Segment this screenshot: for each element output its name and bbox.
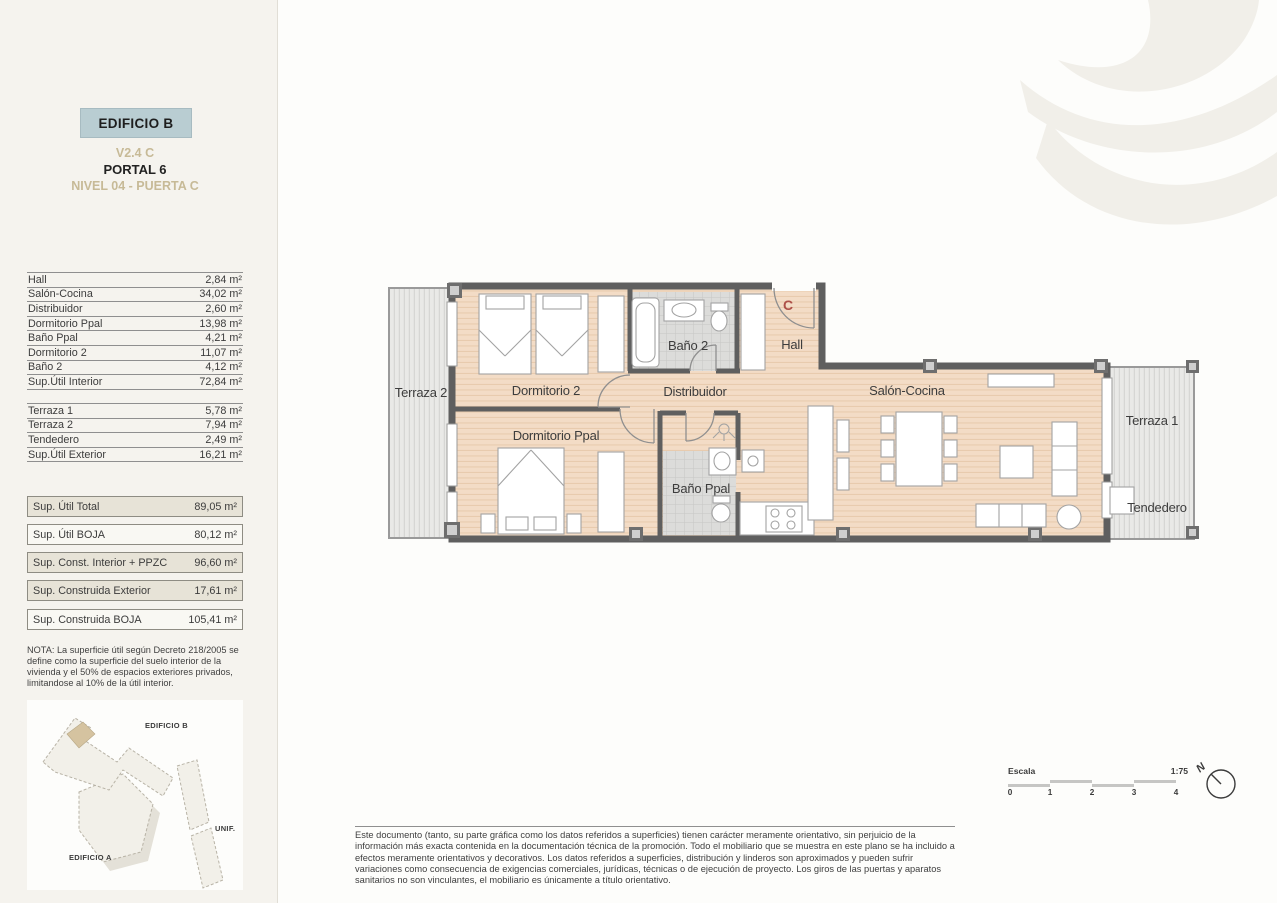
row-value: 5,78 m²: [205, 405, 242, 417]
interior-areas-table: Hall2,84 m² Salón-Cocina34,02 m² Distrib…: [27, 272, 243, 390]
row-label: Terraza 2: [28, 419, 73, 431]
siteplan-label-edificio-b: EDIFICIO B: [145, 721, 188, 730]
scale-tick: 0: [1008, 788, 1013, 797]
table-row: Distribuidor2,60 m²: [27, 302, 243, 317]
row-value: 7,94 m²: [205, 419, 242, 431]
row-value: 2,49 m²: [205, 434, 242, 446]
room-label-hall: Hall: [781, 337, 803, 352]
plan-sheet: Terraza 2 Dormitorio 2 Dormitorio Ppal B…: [278, 0, 1277, 903]
table-row: Baño Ppal4,21 m²: [27, 331, 243, 346]
entry-opening: [772, 281, 816, 291]
building-title-box: EDIFICIO B: [80, 108, 192, 138]
summary-box-const-interior: Sup. Const. Interior + PPZC96,60 m²: [27, 552, 243, 573]
table-row: Sup.Útil Exterior16,21 m²: [27, 448, 243, 463]
info-sidebar: EDIFICIO B V2.4 C PORTAL 6 NIVEL 04 - PU…: [0, 0, 278, 903]
scale-ratio: 1:75: [1171, 766, 1188, 776]
row-value: 11,07 m²: [200, 347, 242, 359]
exterior-areas-table: Terraza 15,78 m² Terraza 27,94 m² Tended…: [27, 403, 243, 462]
table-row: Dormitorio Ppal13,98 m²: [27, 317, 243, 332]
stove: [766, 506, 802, 532]
row-value: 34,02 m²: [199, 288, 242, 300]
bathroom-sink: [664, 300, 704, 321]
row-label: Sup.Útil Exterior: [28, 449, 106, 461]
row-label: Hall: [28, 274, 47, 286]
room-label-terraza1: Terraza 1: [1126, 413, 1178, 428]
edificio-a-outline: [79, 774, 153, 862]
row-label: Distribuidor: [28, 303, 83, 315]
row-label: Tendedero: [28, 434, 79, 446]
room-label-bano-ppal: Baño Ppal: [672, 481, 731, 496]
nota-text: NOTA: La superficie útil según Decreto 2…: [27, 645, 243, 689]
single-bed: [479, 294, 531, 374]
row-value: 4,21 m²: [205, 332, 242, 344]
scale-ruler: [1008, 779, 1188, 788]
bathtub: [632, 298, 659, 367]
row-value: 72,84 m²: [199, 376, 242, 388]
summary-value: 17,61 m²: [194, 585, 237, 597]
nightstand: [481, 514, 495, 533]
floor-plan: Terraza 2 Dormitorio 2 Dormitorio Ppal B…: [385, 278, 1225, 549]
room-label-dormitorio-ppal: Dormitorio Ppal: [513, 428, 600, 443]
summary-label: Sup. Útil BOJA: [33, 529, 105, 541]
kitchen-cabinet: [837, 458, 849, 490]
room-label-terraza2: Terraza 2: [395, 385, 447, 400]
summary-value: 105,41 m²: [188, 614, 237, 626]
entry-letter: C: [783, 297, 793, 313]
summary-label: Sup. Const. Interior + PPZC: [33, 557, 167, 569]
pouf: [1057, 505, 1081, 529]
scale-tick: 2: [1090, 788, 1095, 797]
row-value: 2,84 m²: [205, 274, 242, 286]
room-label-distribuidor: Distribuidor: [663, 384, 727, 399]
table-row: Salón-Cocina34,02 m²: [27, 288, 243, 303]
scale-bar: Escala 1:75 0 1 2 3 4: [1008, 766, 1188, 798]
room-label-tendedero: Tendedero: [1127, 500, 1187, 515]
row-value: 4,12 m²: [205, 361, 242, 373]
siteplan-label-unif: UNIF.: [215, 824, 235, 833]
row-label: Sup.Útil Interior: [28, 376, 102, 388]
room-label-dormitorio2: Dormitorio 2: [512, 383, 580, 398]
sideboard: [988, 374, 1054, 387]
north-letter: N: [1194, 760, 1209, 775]
summary-box-util-boja: Sup. Útil BOJA80,12 m²: [27, 524, 243, 545]
row-label: Baño Ppal: [28, 332, 78, 344]
scale-tick: 1: [1048, 788, 1053, 797]
room-label-bano2: Baño 2: [668, 338, 708, 353]
room-label-salon-cocina: Salón-Cocina: [869, 383, 946, 398]
summary-value: 80,12 m²: [194, 529, 237, 541]
table-row: Tendedero2,49 m²: [27, 433, 243, 448]
hall-closet: [741, 294, 765, 370]
level-label: NIVEL 04 - PUERTA C: [27, 179, 243, 193]
table-row: Dormitorio 211,07 m²: [27, 346, 243, 361]
brand-swoosh-logo: [1020, 0, 1277, 245]
nightstand: [567, 514, 581, 533]
scale-label: Escala: [1008, 766, 1035, 776]
coffee-table: [1000, 446, 1033, 478]
table-row: Terraza 15,78 m²: [27, 404, 243, 419]
row-value: 2,60 m²: [205, 303, 242, 315]
north-arrow: N: [1193, 758, 1243, 804]
summary-box-construida-ext: Sup. Construida Exterior17,61 m²: [27, 580, 243, 601]
disclaimer-text: Este documento (tanto, su parte gráfica …: [355, 826, 955, 887]
toilet: [712, 496, 730, 522]
kitchen-island: [808, 406, 833, 520]
summary-label: Sup. Útil Total: [33, 501, 99, 513]
table-row: Hall2,84 m²: [27, 273, 243, 288]
double-bed: [498, 448, 564, 534]
row-value: 13,98 m²: [199, 318, 242, 330]
summary-box-construida-boja: Sup. Construida BOJA105,41 m²: [27, 609, 243, 630]
site-plan-thumbnail: EDIFICIO B UNIF. EDIFICIO A: [27, 700, 243, 890]
wardrobe: [598, 296, 624, 372]
wardrobe: [598, 452, 624, 532]
unit-code: V2.4 C: [27, 146, 243, 160]
kitchen-cabinet: [837, 420, 849, 452]
row-label: Dormitorio Ppal: [28, 318, 102, 330]
row-label: Terraza 1: [28, 405, 73, 417]
single-bed: [536, 294, 588, 374]
table-row: Sup.Útil Interior72,84 m²: [27, 375, 243, 390]
row-label: Salón-Cocina: [28, 288, 93, 300]
table-row: Baño 24,12 m²: [27, 361, 243, 376]
row-label: Dormitorio 2: [28, 347, 87, 359]
sofa: [976, 504, 1046, 527]
row-label: Baño 2: [28, 361, 62, 373]
dining-table-set: [881, 412, 957, 486]
bathroom-sink: [709, 448, 736, 475]
summary-value: 96,60 m²: [194, 557, 237, 569]
row-value: 16,21 m²: [199, 449, 242, 461]
summary-box-util-total: Sup. Útil Total89,05 m²: [27, 496, 243, 517]
table-row: Terraza 27,94 m²: [27, 419, 243, 434]
building-title: EDIFICIO B: [98, 116, 173, 131]
kitchen-sink: [742, 450, 764, 472]
scale-tick: 3: [1132, 788, 1137, 797]
summary-label: Sup. Construida BOJA: [33, 614, 142, 626]
terrace2-floor: [389, 288, 453, 538]
siteplan-label-edificio-a: EDIFICIO A: [69, 853, 112, 862]
sofa: [1052, 422, 1077, 496]
summary-label: Sup. Construida Exterior: [33, 585, 151, 597]
scale-tick: 4: [1174, 788, 1179, 797]
toilet: [711, 303, 728, 331]
portal-label: PORTAL 6: [27, 162, 243, 177]
summary-value: 89,05 m²: [194, 501, 237, 513]
